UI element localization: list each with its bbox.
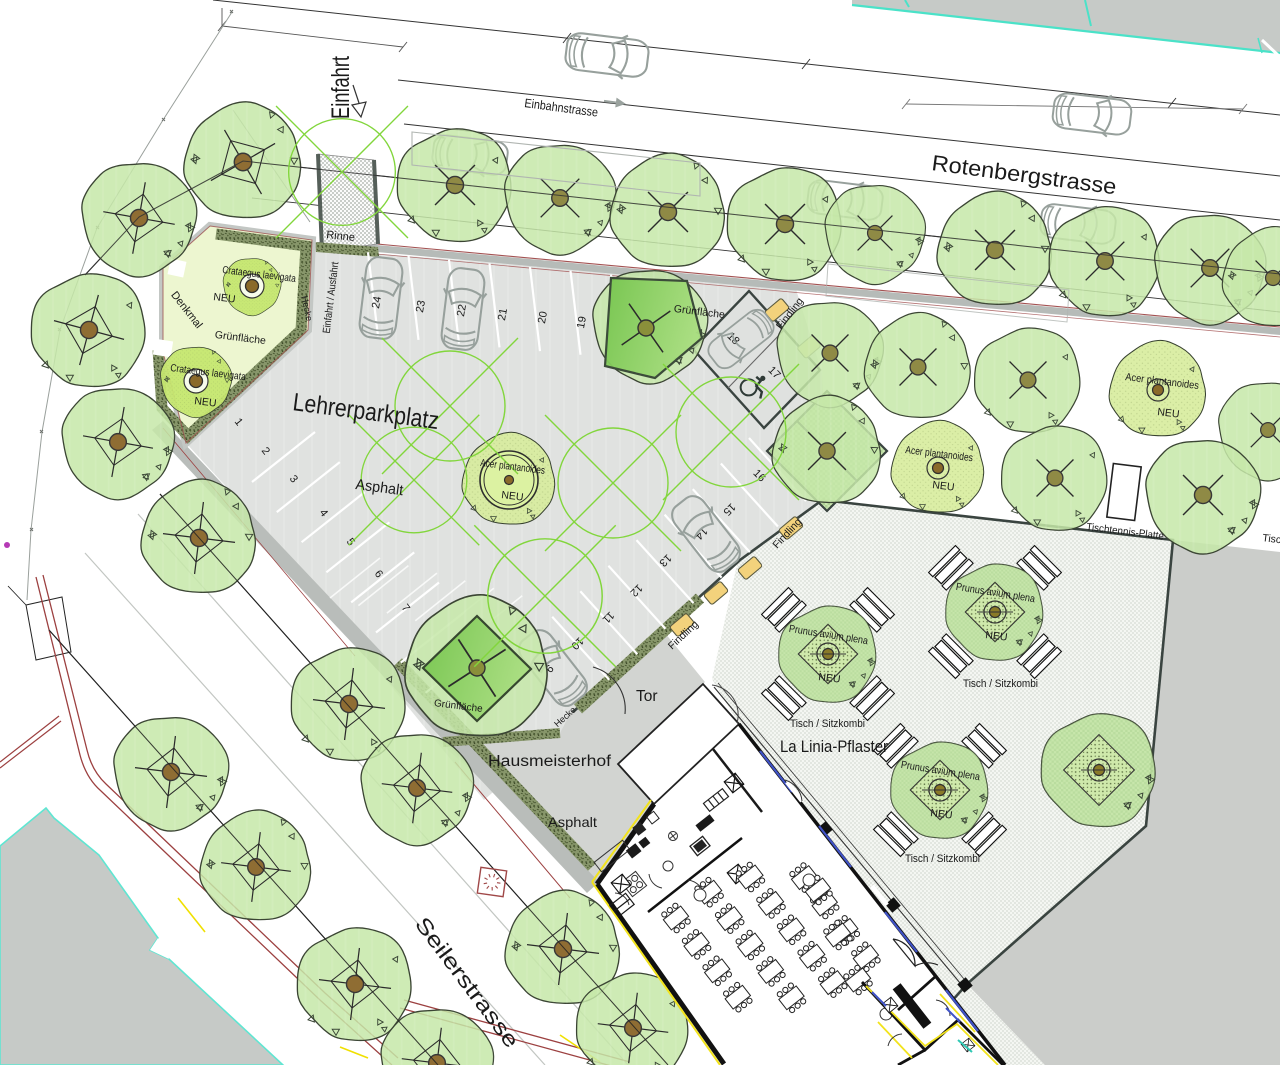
svg-text:24: 24	[370, 295, 384, 309]
svg-text:21: 21	[496, 307, 510, 321]
svg-text:20: 20	[536, 310, 550, 324]
svg-text:Tor: Tor	[636, 688, 658, 705]
svg-text:Einfahrt: Einfahrt	[327, 56, 355, 119]
svg-text:Asphalt: Asphalt	[548, 814, 597, 830]
svg-text:Hausmeisterhof: Hausmeisterhof	[488, 753, 612, 770]
svg-text:Tisch / Sitzkombi: Tisch / Sitzkombi	[790, 718, 865, 730]
svg-text:22: 22	[455, 303, 469, 317]
svg-text:Tisch / Sitzkombi: Tisch / Sitzkombi	[905, 853, 980, 865]
svg-text:Tisch / Sitzkombi: Tisch / Sitzkombi	[963, 678, 1038, 690]
svg-text:La Linia-Pflaster: La Linia-Pflaster	[780, 737, 888, 756]
svg-text:19: 19	[575, 315, 589, 329]
svg-text:23: 23	[414, 299, 428, 313]
